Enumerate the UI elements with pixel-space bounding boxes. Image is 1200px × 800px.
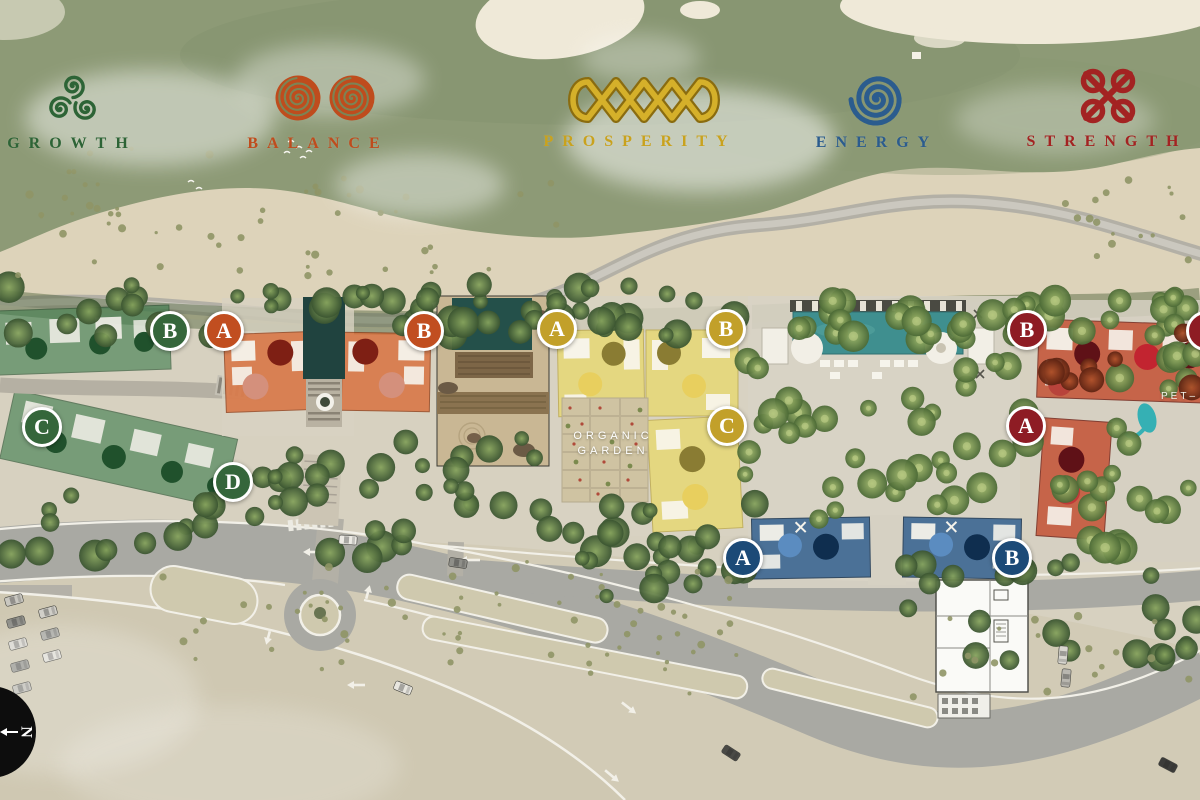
building-marker-balance-a[interactable]: A — [204, 311, 244, 351]
prosperity-theme-label[interactable]: PROSPERITY — [543, 133, 736, 151]
pet-area-label: PET– — [1161, 391, 1198, 402]
energy-theme-label[interactable]: ENERGY — [816, 134, 938, 152]
building-marker-strength-a[interactable]: A — [1006, 406, 1046, 446]
building-marker-balance-b[interactable]: B — [404, 311, 444, 351]
building-marker-energy-b[interactable]: B — [992, 538, 1032, 578]
building-marker-prosperity-c[interactable]: C — [707, 406, 747, 446]
compass-north-indicator: N — [0, 684, 38, 780]
building-marker-prosperity-a[interactable]: A — [537, 309, 577, 349]
organic-garden-label: ORGANIC GARDEN — [573, 430, 652, 457]
building-marker-prosperity-b[interactable]: B — [706, 309, 746, 349]
strength-theme-label[interactable]: STRENGTH — [1027, 133, 1188, 151]
building-marker-growth-c[interactable]: C — [22, 407, 62, 447]
building-marker-energy-a[interactable]: A — [723, 538, 763, 578]
balance-theme-label[interactable]: BALANCE — [247, 135, 388, 153]
boardwalk — [306, 379, 342, 427]
building-marker-strength-b[interactable]: B — [1007, 310, 1047, 350]
compass-letter: N — [18, 726, 35, 738]
building-marker-growth-b[interactable]: B — [150, 311, 190, 351]
site-plan-rendering — [0, 0, 1200, 800]
resort-masterplan-map: GROWTH BALANCE PROSPERITY ENERGY STRENGT… — [0, 0, 1200, 800]
growth-theme-label[interactable]: GROWTH — [7, 135, 137, 153]
building-marker-growth-d[interactable]: D — [213, 462, 253, 502]
